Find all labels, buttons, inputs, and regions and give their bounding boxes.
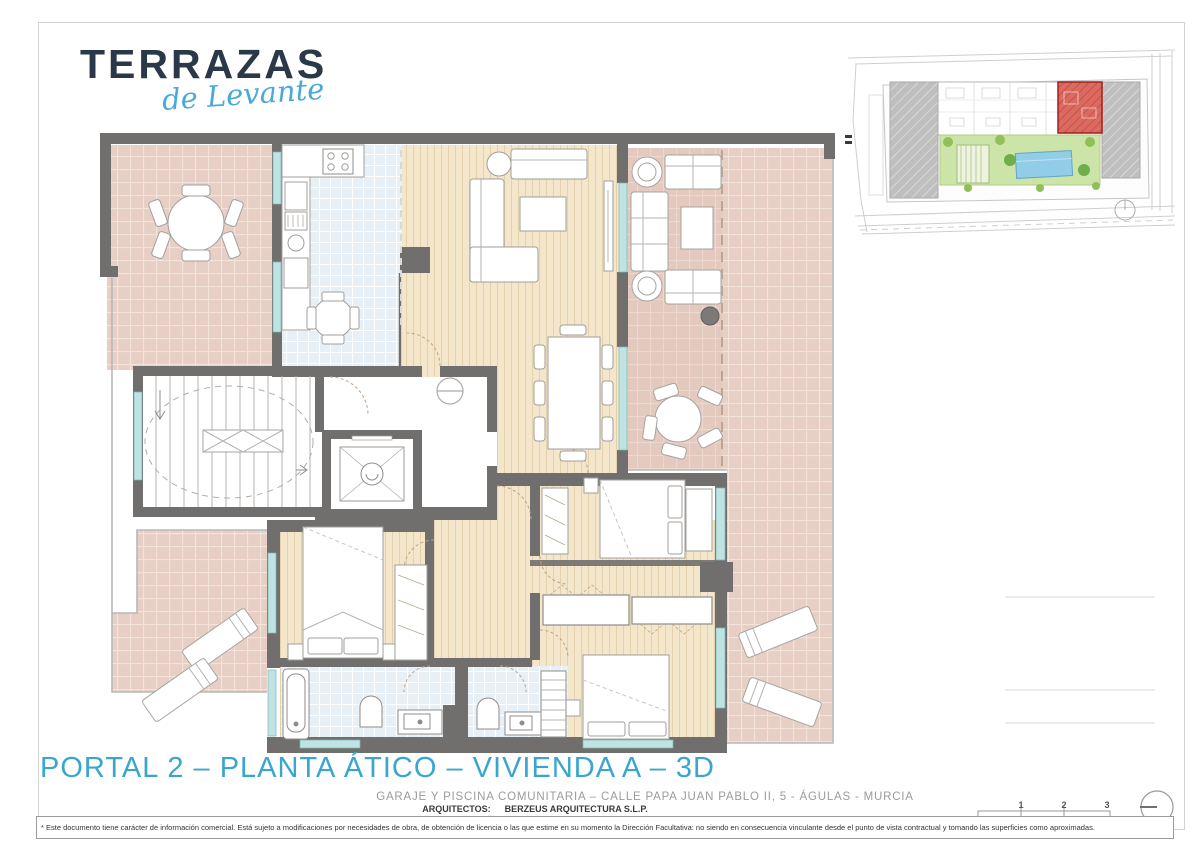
site-block-right — [1102, 82, 1140, 178]
page-title: PORTAL 2 – PLANTA ÁTICO – VIVIENDA A – 3… — [40, 752, 715, 785]
site-compass — [1115, 200, 1135, 220]
bedroom2 — [542, 478, 712, 558]
site-block-left — [890, 82, 938, 198]
disclaimer-box: * Este documento tiene carácter de infor… — [36, 816, 1174, 839]
architects-label: ARQUITECTOS: — [422, 804, 490, 814]
site-plan — [845, 50, 1175, 234]
site-highlight-unit — [1058, 82, 1102, 133]
plan-sheet-graphics: 1 2 3 — [0, 0, 1200, 849]
floor-plan — [100, 133, 835, 753]
elevator — [322, 430, 422, 518]
architects-line: ARQUITECTOS:BERZEUS ARQUITECTURA S.L.P. — [380, 804, 690, 814]
site-marker — [845, 135, 852, 138]
architects-name: BERZEUS ARQUITECTURA S.L.P. — [505, 804, 648, 814]
project-address: GARAJE Y PISCINA COMUNITARIA – CALLE PAP… — [340, 791, 950, 803]
site-garden — [940, 135, 1100, 192]
surface-table-lines — [1005, 597, 1155, 723]
scale-label-3: 3 — [1104, 800, 1109, 810]
scale-label-1: 1 — [1018, 800, 1023, 810]
disclaimer-text: * Este documento tiene carácter de infor… — [41, 823, 1095, 832]
scale-label-2: 2 — [1061, 800, 1066, 810]
